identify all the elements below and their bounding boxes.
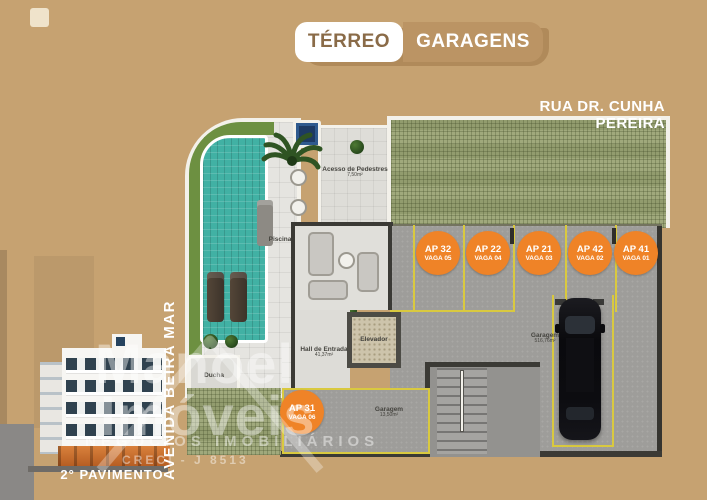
wall-segment	[291, 222, 393, 226]
badge-ap: AP 42	[577, 244, 603, 255]
badge-ap: AP 21	[526, 244, 552, 255]
marketing-floorplan-page: TÉRREO GARAGENS RUA DR. CUNHA PEREIRA AV…	[0, 0, 707, 500]
wall-segment	[510, 228, 514, 244]
badge-ap: AP 41	[623, 244, 649, 255]
car-roof	[566, 338, 594, 392]
pedestrian-access-label: Acesso de Pedestres7,50m²	[322, 166, 388, 179]
garage-main-label: Garagem516,76m²	[515, 332, 575, 345]
parking-badge: AP 41 VAGA 01	[614, 231, 658, 275]
parking-badge: AP 32 VAGA 05	[416, 231, 460, 275]
wall-segment	[612, 228, 616, 244]
grass-pavers-area	[387, 116, 670, 228]
parking-badge: AP 22 VAGA 04	[466, 231, 510, 275]
badge-vaga: VAGA 01	[622, 255, 649, 263]
badge-vaga: VAGA 04	[474, 255, 501, 263]
sofa	[357, 252, 379, 292]
wall-segment	[390, 224, 662, 226]
pool-label: Piscina	[255, 236, 305, 243]
tab-garagens-label: GARAGENS	[416, 31, 530, 53]
palm-tree-icon	[260, 127, 324, 191]
parking-badge: AP 42 VAGA 02	[568, 231, 612, 275]
parking-line	[463, 225, 465, 312]
building-floor	[66, 402, 162, 414]
badge-vaga: VAGA 02	[576, 255, 603, 263]
badge-ap: AP 31	[289, 403, 315, 414]
badge-vaga: VAGA 03	[525, 255, 552, 263]
sofa	[308, 280, 348, 300]
parking-line	[413, 225, 415, 312]
bush	[350, 140, 364, 154]
parking-line	[552, 445, 614, 447]
garage-small-label: Garagem13,50m²	[363, 406, 415, 419]
building-floor	[66, 424, 162, 436]
wall-segment	[388, 225, 392, 310]
bush	[203, 334, 218, 349]
parked-car	[557, 298, 603, 440]
building-floor	[66, 380, 162, 392]
bush	[225, 335, 238, 348]
street-label-top: RUA DR. CUNHA PEREIRA	[480, 98, 665, 132]
pool-lounger	[207, 272, 224, 322]
building-render	[28, 334, 168, 466]
sofa	[308, 232, 334, 276]
tab-terreo-label: TÉRREO	[308, 31, 390, 53]
badge-ap: AP 32	[425, 244, 451, 255]
tab-garagens[interactable]: GARAGENS	[403, 22, 543, 62]
parking-line	[390, 310, 515, 312]
badge-vaga: VAGA 06	[288, 414, 315, 422]
parking-line	[612, 295, 614, 447]
stair-rail	[460, 370, 464, 432]
hall-label: Hall de Entrada41,37m²	[291, 346, 357, 359]
logo-placeholder	[30, 8, 49, 27]
coffee-table	[338, 252, 355, 269]
parking-line	[552, 295, 554, 447]
car-rear-glass	[566, 407, 594, 420]
badge-ap: AP 22	[475, 244, 501, 255]
building-base	[58, 446, 170, 468]
building-sign	[116, 337, 125, 346]
street-label-left: AVENIDA BEIRA MAR	[161, 285, 178, 480]
walkway	[234, 358, 282, 388]
round-table	[290, 199, 307, 216]
elevator-label: Elevador	[360, 336, 387, 343]
elevator-shaft: Elevador	[347, 312, 401, 368]
tab-terreo[interactable]: TÉRREO	[295, 22, 403, 62]
car-mirror	[600, 324, 605, 333]
parking-badge-31: AP 31 VAGA 06	[280, 390, 324, 434]
badge-vaga: VAGA 05	[424, 255, 451, 263]
building-floor	[66, 358, 162, 370]
floor-plan: Elevador Ducha AP 32 VAGA 05 AP 22	[185, 112, 667, 460]
shower-label: Ducha	[204, 372, 224, 379]
grass-pavers-area-bottom	[187, 388, 281, 455]
parking-badge: AP 21 VAGA 03	[517, 231, 561, 275]
pool-lounger	[230, 272, 247, 322]
building-front-face	[62, 348, 166, 454]
thumbnail-caption: 2° PAVIMENTO	[36, 467, 188, 482]
